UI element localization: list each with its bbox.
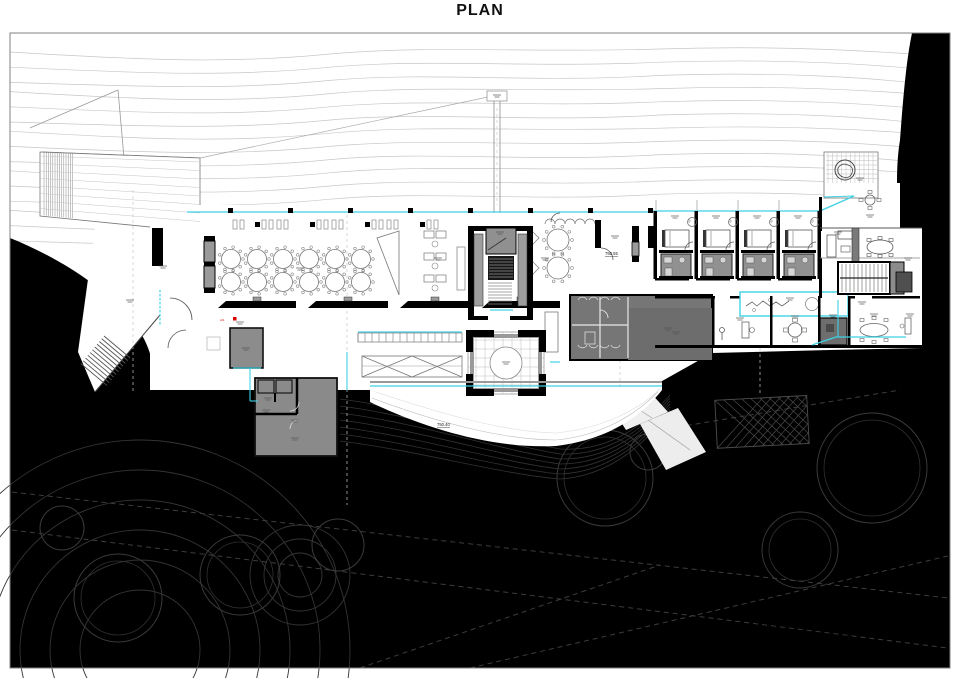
roof-reference-lines [30,90,488,158]
drawing-sheet: PLAN A/1750.40750.55 [0,0,960,678]
floor-plan-drawing: A/1750.40750.55 [0,0,960,678]
elevation-label: 750.40 [437,422,450,427]
grid-marker-label: A/1 [220,318,225,322]
west-gray-room [230,328,263,368]
annex-building [250,368,337,456]
service-block [570,295,712,360]
elevation-label: 750.55 [605,251,618,256]
